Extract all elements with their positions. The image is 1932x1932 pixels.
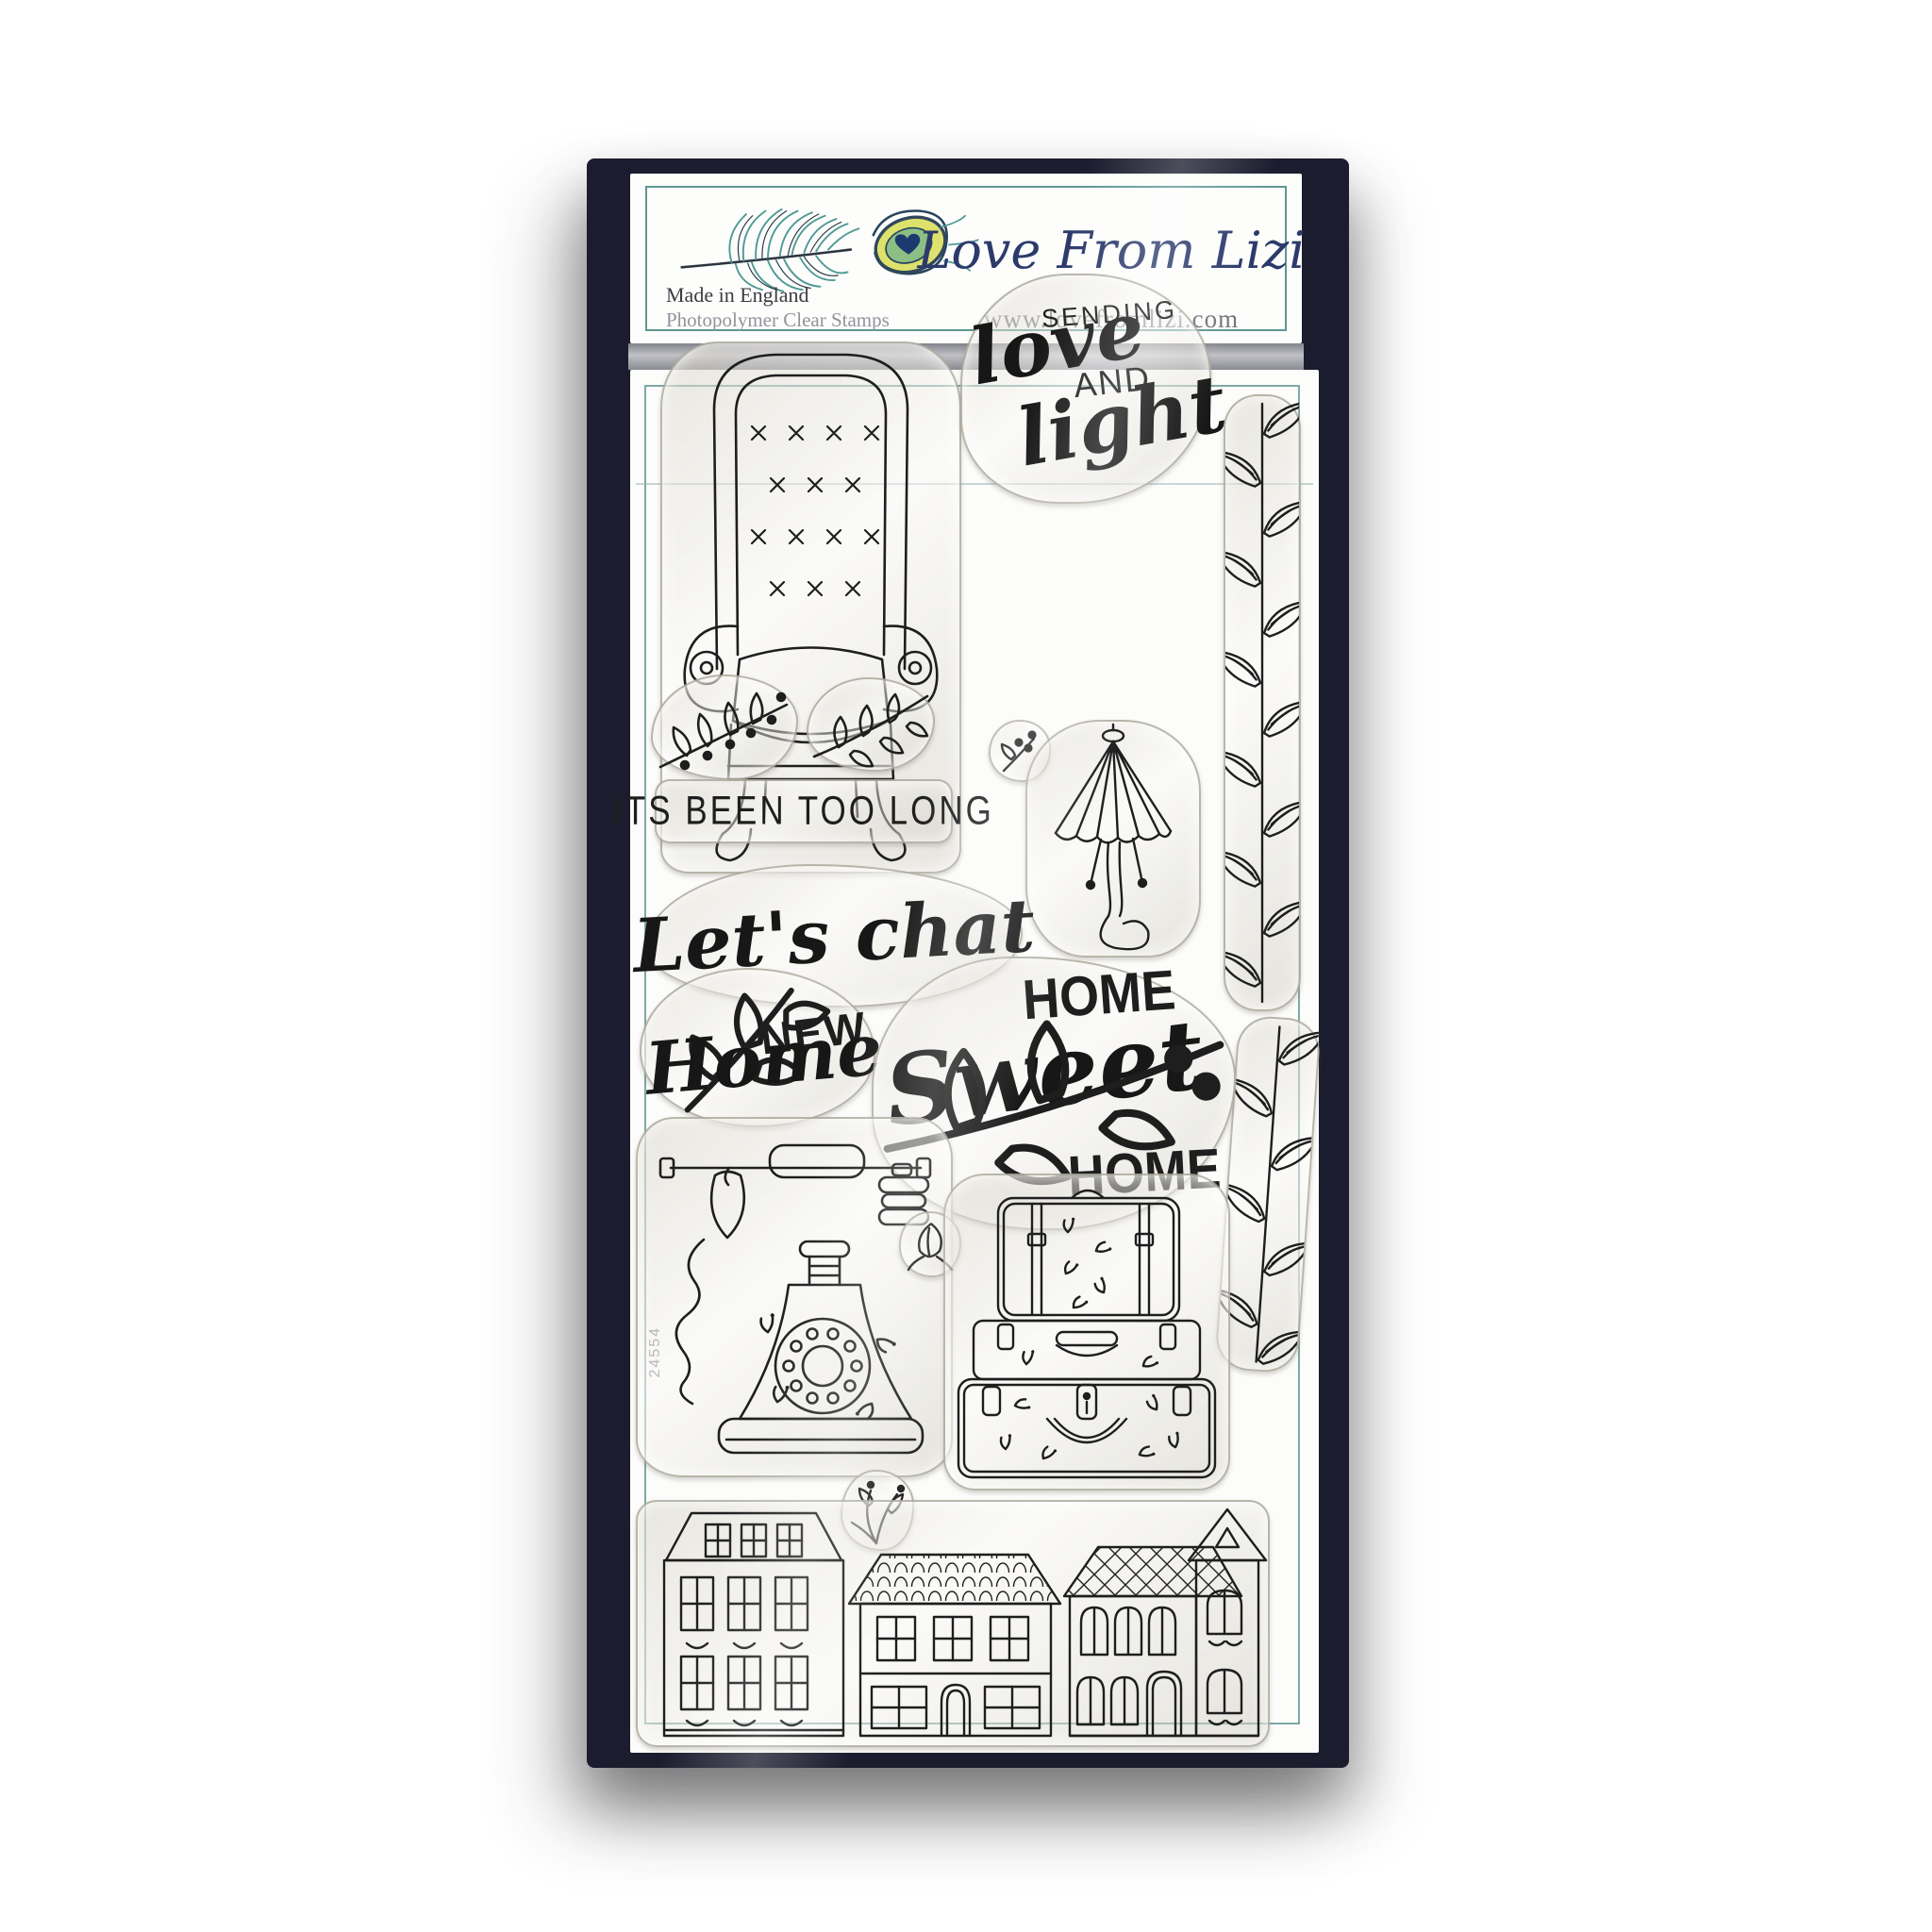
product-type-label: Photopolymer Clear Stamps: [666, 308, 890, 332]
berry-branch-stamp: [651, 675, 798, 780]
vintage-telephone-stamp: [636, 1117, 953, 1477]
product-photo: Love From Lizi Made in England Photopoly…: [0, 0, 1932, 1932]
leaf-vine-icon: [1225, 396, 1299, 1009]
fringe-lamp-icon: [1027, 722, 1199, 956]
row-houses-stamp: [636, 1500, 1270, 1747]
leaf-branch-icon: [808, 679, 933, 770]
new-home-stamp: NEW Home: [640, 968, 875, 1127]
stamp-packaging-box: Love From Lizi Made in England Photopoly…: [587, 158, 1349, 1768]
suitcase-stack-icon: [945, 1175, 1228, 1489]
made-in-label: Made in England: [666, 283, 809, 308]
been-too-long-text: ITS BEEN TOO LONG: [657, 774, 951, 848]
leaf-branch-stamp: [807, 677, 935, 772]
leaf-vine-border-stamp-upper: [1224, 394, 1301, 1011]
berry-branch-icon: [653, 676, 796, 778]
fringe-lamp-stamp: [1025, 720, 1201, 958]
suitcase-stack-stamp: [943, 1174, 1230, 1491]
row-houses-icon: [638, 1502, 1268, 1745]
vintage-telephone-icon: [638, 1119, 951, 1475]
been-too-long-stamp: ITS BEEN TOO LONG: [655, 779, 953, 843]
